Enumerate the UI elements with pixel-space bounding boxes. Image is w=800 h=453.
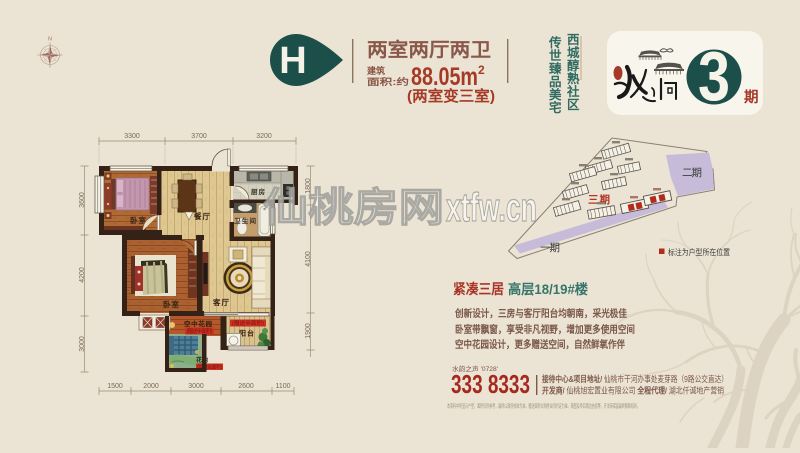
svg-text:客厅: 客厅 bbox=[212, 297, 230, 307]
svg-text:(赠送半面积): (赠送半面积) bbox=[232, 319, 264, 327]
svg-text:餐厅: 餐厅 bbox=[193, 211, 211, 221]
svg-text:1900: 1900 bbox=[305, 323, 312, 339]
svg-text:3300: 3300 bbox=[124, 133, 140, 140]
svg-text:传世臻品美宅: 传世臻品美宅 bbox=[548, 35, 562, 115]
svg-text:高层18/19#楼: 高层18/19#楼 bbox=[508, 281, 588, 297]
svg-text:3: 3 bbox=[698, 37, 730, 115]
svg-text:3000: 3000 bbox=[79, 336, 86, 352]
svg-text:(两室变三室): (两室变三室) bbox=[407, 87, 495, 105]
svg-text:开发商/ 仙桃旭宏置业有限公司 全程代理/ 湖北仟诚地产营: 开发商/ 仙桃旭宏置业有限公司 全程代理/ 湖北仟诚地产营销 bbox=[542, 386, 724, 396]
svg-text:1100: 1100 bbox=[275, 383, 290, 390]
svg-text:紧凑三居: 紧凑三居 bbox=[453, 281, 504, 297]
svg-text:3200: 3200 bbox=[256, 133, 272, 140]
svg-text:88.05m: 88.05m bbox=[411, 63, 478, 91]
svg-text:期: 期 bbox=[744, 88, 759, 106]
svg-text:西城醇熟社区: 西城醇熟社区 bbox=[566, 33, 580, 112]
svg-text:4100: 4100 bbox=[305, 251, 312, 267]
svg-text:卧室带飘窗，享受非凡视野，增加更多使用空间: 卧室带飘窗，享受非凡视野，增加更多使用空间 bbox=[455, 323, 635, 336]
svg-text:卧室: 卧室 bbox=[163, 299, 180, 309]
svg-text:卫生间: 卫生间 bbox=[234, 216, 257, 225]
svg-text:3000: 3000 bbox=[188, 383, 204, 390]
svg-text:面积:约: 面积:约 bbox=[367, 76, 409, 87]
svg-text:H: H bbox=[279, 40, 306, 82]
svg-text:2: 2 bbox=[478, 63, 485, 77]
svg-text:标注为户型所在位置: 标注为户型所在位置 bbox=[668, 247, 730, 257]
svg-text:接待中心&项目地址/ 仙桃市干河办事处麦芽路（9路公交直达）: 接待中心&项目地址/ 仙桃市干河办事处麦芽路（9路公交直达） bbox=[542, 374, 728, 384]
svg-text:创新设计，三房与客厅阳台均朝南，采光极佳: 创新设计，三房与客厅阳台均朝南，采光极佳 bbox=[454, 307, 627, 320]
svg-text:1500: 1500 bbox=[107, 383, 123, 390]
svg-text:2000: 2000 bbox=[143, 383, 159, 390]
svg-text:2600: 2600 bbox=[238, 383, 254, 390]
svg-text:3600: 3600 bbox=[79, 192, 86, 208]
svg-text:仙桃房网: 仙桃房网 bbox=[263, 186, 444, 230]
svg-text:两室两厅两卫: 两室两厅两卫 bbox=[367, 38, 491, 61]
svg-text:4200: 4200 bbox=[79, 267, 86, 283]
svg-text:本资料中所显示户型、面积仅供参考，最终以政府核准为准。赠送面: 本资料中所显示户型、面积仅供参考，最终以政府核准为准。赠送面积以购房合同约定为准… bbox=[447, 402, 640, 410]
svg-text:阳台: 阳台 bbox=[239, 329, 254, 338]
svg-text:333 8333: 333 8333 bbox=[451, 369, 530, 399]
svg-text:xtfw.cn: xtfw.cn bbox=[446, 186, 537, 230]
svg-text:3700: 3700 bbox=[191, 133, 207, 140]
svg-text:建筑: 建筑 bbox=[367, 65, 385, 76]
svg-text:空中花园: 空中花园 bbox=[184, 319, 213, 328]
svg-text:二期: 二期 bbox=[682, 167, 702, 179]
svg-text:(赠送半面积): (赠送半面积) bbox=[187, 327, 213, 335]
svg-text:N: N bbox=[48, 37, 52, 43]
svg-text:空中花园设计，更多赠送空间，自然鲜氧作伴: 空中花园设计，更多赠送空间，自然鲜氧作伴 bbox=[455, 338, 625, 351]
svg-text:一期: 一期 bbox=[540, 242, 560, 254]
